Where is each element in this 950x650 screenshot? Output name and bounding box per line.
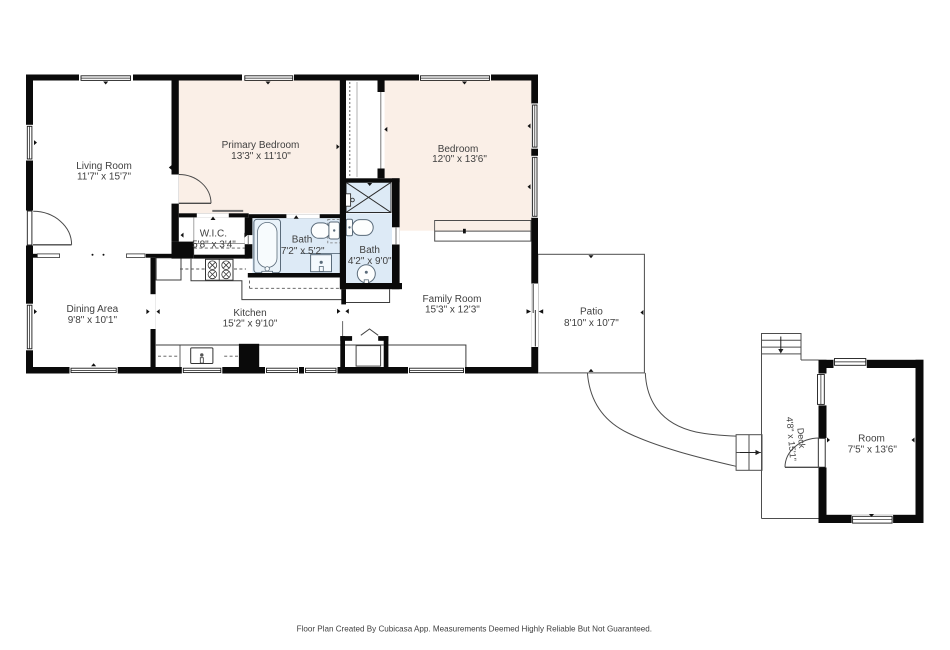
svg-text:Dining Area: Dining Area — [67, 304, 119, 315]
svg-text:4'2" x 9'0": 4'2" x 9'0" — [348, 256, 392, 267]
svg-text:Bath: Bath — [359, 245, 380, 256]
svg-text:W.I.C.: W.I.C. — [200, 229, 227, 240]
svg-text:4'8" x 15'1": 4'8" x 15'1" — [784, 416, 798, 461]
svg-text:13'3" x 11'10": 13'3" x 11'10" — [231, 151, 291, 162]
svg-text:Primary Bedroom: Primary Bedroom — [222, 140, 300, 151]
svg-text:9'8" x 10'1": 9'8" x 10'1" — [68, 315, 118, 326]
svg-text:12'0" x 13'6": 12'0" x 13'6" — [432, 154, 487, 165]
svg-text:Floor Plan Created By Cubicasa: Floor Plan Created By Cubicasa App. Meas… — [297, 625, 652, 634]
svg-text:8'10" x 10'7": 8'10" x 10'7" — [564, 318, 619, 329]
svg-text:Bath: Bath — [292, 235, 313, 246]
svg-text:7'2" x 5'2": 7'2" x 5'2" — [281, 246, 325, 257]
svg-text:15'3" x 12'3": 15'3" x 12'3" — [425, 305, 480, 316]
svg-text:11'7" x 15'7": 11'7" x 15'7" — [77, 171, 132, 182]
svg-text:15'2" x 9'10": 15'2" x 9'10" — [223, 319, 278, 330]
svg-text:7'5" x 13'6": 7'5" x 13'6" — [848, 444, 898, 455]
svg-text:Kitchen: Kitchen — [233, 308, 266, 319]
svg-text:Patio: Patio — [580, 307, 603, 318]
svg-text:5'8" x 3'4": 5'8" x 3'4" — [192, 240, 236, 251]
svg-text:Room: Room — [858, 434, 885, 445]
